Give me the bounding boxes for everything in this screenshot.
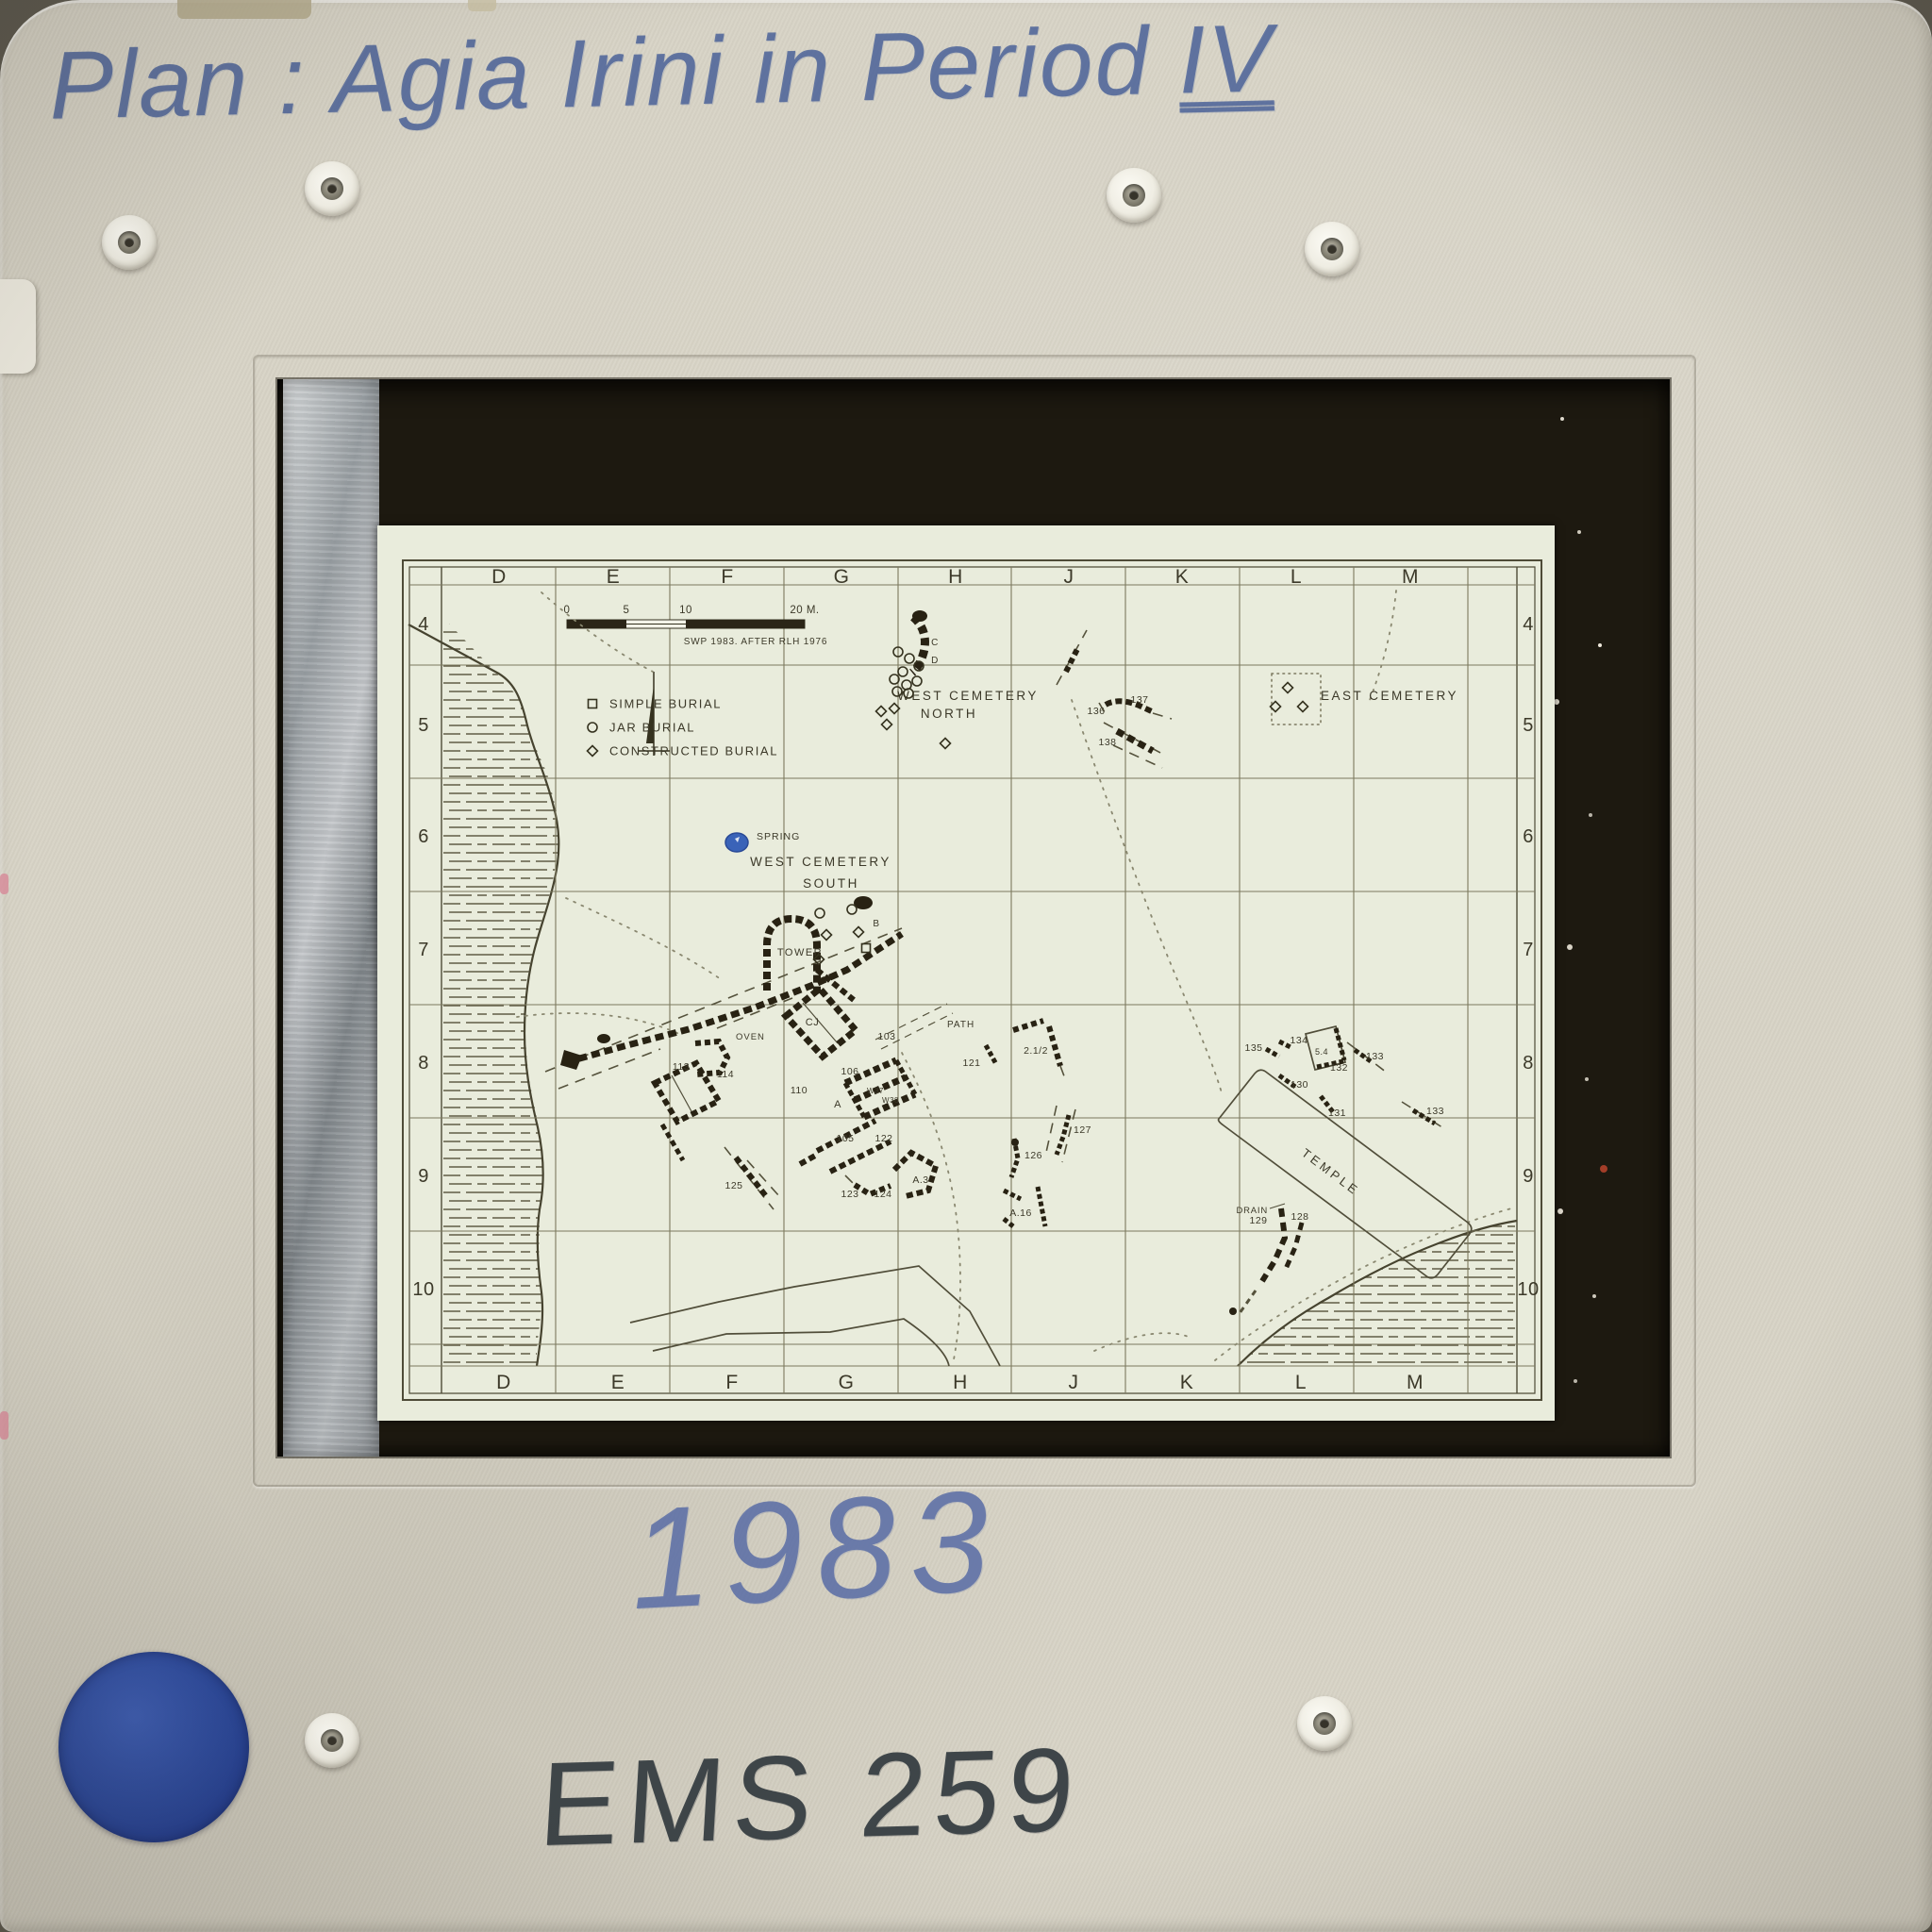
spring-icon [725,833,748,852]
map-label: 132 [1330,1062,1348,1074]
grid-letter: D [491,566,507,588]
map-label: 133 [1366,1051,1384,1062]
handwritten-year: 1983 [626,1458,1007,1642]
grid-letter: F [725,1372,738,1393]
map-label: A.3 [912,1174,928,1186]
grid-letter: J [1064,566,1074,588]
film-map: DDEEFFGGHHJJKKLLMM4455667788991010SIMPLE… [377,525,1555,1421]
blue-dot-sticker [58,1652,249,1842]
grid-number: 10 [1517,1279,1539,1300]
grid-letter: K [1175,566,1190,588]
scale-end-label: 20 M. [790,605,819,616]
grid-number: 7 [418,940,429,960]
map-label: 106 [841,1066,858,1077]
map-label: OVEN [736,1032,765,1042]
map-label: 5.4 [1315,1047,1328,1057]
grid-letter: J [1069,1372,1079,1393]
slide-photo: Plan : Agia Irini in Period IV 1983 EMS … [0,0,1932,1932]
map-label: A [834,1099,841,1110]
grid-number: 7 [1523,940,1534,960]
map-label: 130 [1291,1079,1308,1091]
slide-mount: Plan : Agia Irini in Period IV 1983 EMS … [0,0,1932,1932]
rivet [1305,222,1359,276]
scale-bar [567,620,805,628]
map-label: 136 [1087,706,1105,717]
grid-letter: M [1402,566,1419,588]
grid-number: 5 [1523,715,1534,736]
map-label: 103 [877,1031,895,1042]
grid-number: 10 [412,1279,434,1300]
grid-letter: E [607,566,621,588]
map-label: WEST CEMETERY [897,689,1039,703]
rivet [1107,168,1161,223]
aluminum-strip [283,379,379,1457]
handwritten-catalog-number: EMS 259 [536,1721,1086,1873]
grid-letter: D [496,1372,511,1393]
rivet [305,1713,359,1768]
rivet [102,215,157,270]
scale-tick: 10 [679,605,692,616]
map-label: 129 [1249,1215,1267,1226]
map-label: 135 [1244,1042,1262,1054]
map-label: 122 [874,1133,892,1144]
handwritten-title: Plan : Agia Irini in Period IV [48,3,1274,141]
map-label: 126 [1024,1150,1042,1161]
map-label: 128 [1291,1211,1308,1223]
tape-residue [177,0,311,19]
map-label: 114 [717,1069,734,1080]
grid-letter: F [721,566,733,588]
map-label: 124 [874,1189,891,1200]
grid-number: 9 [418,1166,429,1187]
scale-tick: 0 [564,605,571,616]
map-label: 125 [724,1180,742,1191]
map-label: 113 [673,1061,690,1073]
grid-number: 8 [1523,1053,1534,1074]
map-label: 127 [1074,1124,1091,1136]
map-label: SPRING [757,831,800,842]
map-label: 138 [1098,737,1116,748]
map-label: 123 [841,1189,858,1200]
map-label: 133 [1426,1106,1444,1117]
legend-label: JAR BURIAL [609,721,695,735]
map-label: NORTH [921,707,977,721]
map-label: 134 [1290,1035,1307,1046]
grid-letter: G [839,1372,855,1393]
rivet [1297,1696,1352,1751]
pink-fleck [0,1411,8,1440]
grid-number: 6 [418,826,429,847]
scale-tick: 5 [624,605,630,616]
grid-number: 8 [418,1053,429,1074]
dust-specks [1560,417,1564,421]
map-label: B [873,919,879,929]
rivet [305,161,359,216]
grid-letter: H [948,566,963,588]
grid-number: 6 [1523,826,1534,847]
legend-label: CONSTRUCTED BURIAL [609,744,778,758]
notch-tab [0,279,36,374]
map-label: C [931,638,939,648]
map-label: D [931,656,939,666]
grid-number: 5 [418,715,429,736]
grid-letter: L [1295,1372,1307,1393]
site-plan-svg: DDEEFFGGHHJJKKLLMM4455667788991010SIMPLE… [377,525,1555,1421]
map-label: 105 [836,1133,854,1144]
map-label: 110 [791,1085,808,1096]
map-label: W38 [882,1096,899,1105]
map-label: 137 [1130,694,1148,706]
grid-number: 4 [1523,614,1534,635]
map-label: 131 [1328,1108,1346,1119]
tape-residue [468,0,496,11]
pink-fleck [0,874,8,894]
handwritten-period-numeral: IV [1177,4,1274,113]
map-label: PATH [947,1020,974,1030]
grid-letter: L [1291,566,1302,588]
map-label: EAST CEMETERY [1321,689,1458,703]
grid-letter: M [1407,1372,1424,1393]
map-label: 2.1/2 [1024,1045,1048,1057]
map-label: W37 [867,1087,884,1095]
grid-letter: G [834,566,850,588]
legend-label: SIMPLE BURIAL [609,697,722,711]
grid-letter: E [611,1372,625,1393]
grid-number: 4 [418,614,429,635]
map-label: CJ [806,1017,819,1028]
map-label: A.16 [1009,1207,1032,1219]
map-label: 121 [962,1058,980,1069]
grid-letter: H [953,1372,968,1393]
map-label: SOUTH [803,876,859,891]
map-label: WEST CEMETERY [750,855,891,869]
scale-credit: SWP 1983. AFTER RLH 1976 [684,637,827,647]
grid-number: 9 [1523,1166,1534,1187]
handwritten-title-text: Plan : Agia Irini in Period [48,7,1180,140]
grid-letter: K [1180,1372,1194,1393]
